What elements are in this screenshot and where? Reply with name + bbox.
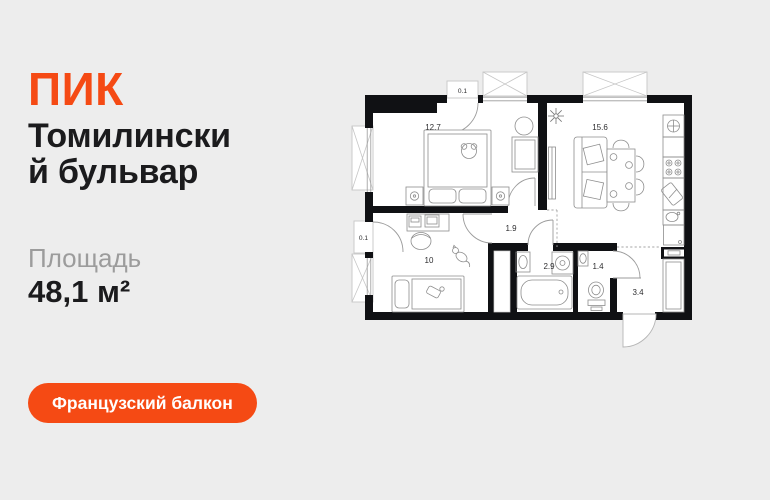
sun-icon <box>548 108 564 124</box>
sofa-icon <box>574 137 607 208</box>
room-area-label: 1.4 <box>592 262 604 271</box>
french-balcony-left: 0.1 <box>354 221 373 253</box>
room-area-label: 3.4 <box>632 288 644 297</box>
room-area-label: 0.1 <box>458 88 467 95</box>
single-bed-icon <box>392 276 464 312</box>
room-area-label: 10 <box>425 256 434 265</box>
floor-plan: 0.1 0.1 <box>0 0 770 500</box>
radiator-icon <box>549 147 556 199</box>
entry-console <box>664 250 684 257</box>
double-bed-icon <box>424 130 491 206</box>
room-area-label: 15.6 <box>592 123 608 132</box>
room-area-label: 2.9 <box>543 262 555 271</box>
shaft <box>494 251 510 312</box>
entrance-door-icon <box>623 314 656 347</box>
french-balcony-top: 0.1 <box>447 81 478 98</box>
room-area-label: 1.9 <box>505 224 517 233</box>
room-area-label: 12.7 <box>425 123 441 132</box>
listing-banner[interactable]: ПИК Томилински й бульвар Площадь 48,1 м²… <box>0 0 770 500</box>
room-area-label: 0.1 <box>359 235 368 242</box>
